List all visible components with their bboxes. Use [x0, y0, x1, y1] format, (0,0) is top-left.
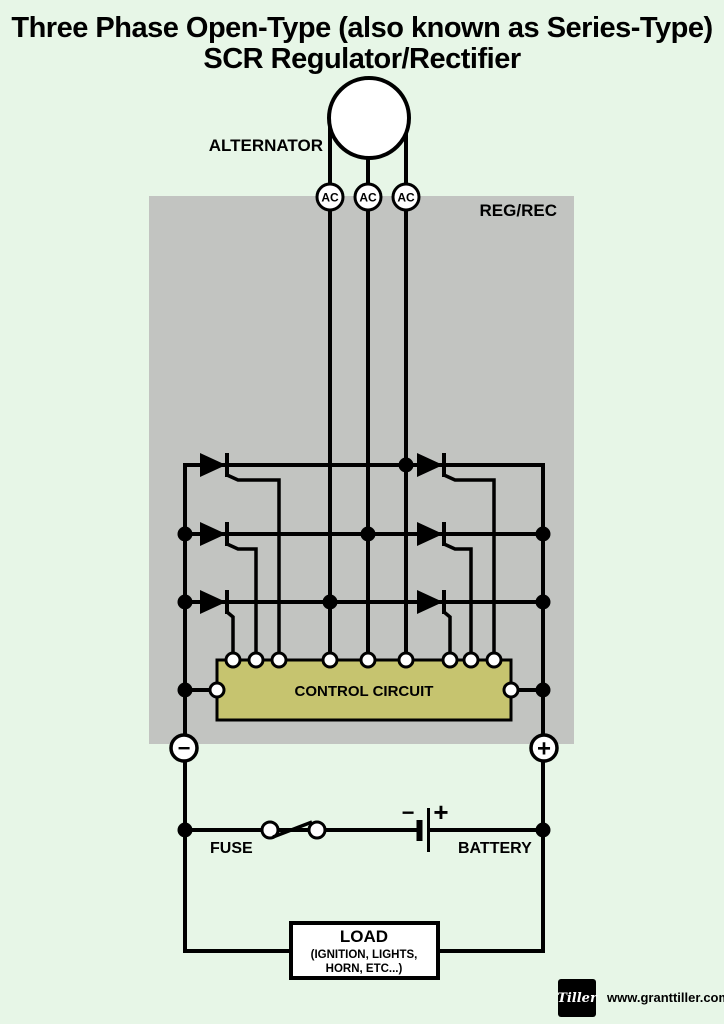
- load-title: LOAD: [340, 927, 388, 946]
- brand-logo: Tiller: [557, 979, 598, 1017]
- control-terminal: [361, 653, 375, 667]
- circuit-diagram: Three Phase Open-Type (also known as Ser…: [0, 0, 724, 1024]
- control-terminal: [399, 653, 413, 667]
- ac-terminal-1: AC: [317, 184, 343, 210]
- battery-plus-sign: +: [433, 797, 448, 827]
- load-subtitle-1: (IGNITION, LIGHTS,: [311, 949, 418, 961]
- control-terminal: [464, 653, 478, 667]
- junction-dot: [536, 823, 551, 838]
- fuse-label: FUSE: [210, 840, 253, 857]
- page-title-line2: SCR Regulator/Rectifier: [203, 43, 520, 75]
- regrec-label: REG/REC: [480, 201, 557, 220]
- battery-symbol: − +: [402, 797, 449, 852]
- junction-dot: [536, 683, 551, 698]
- page-title-line1: Three Phase Open-Type (also known as Ser…: [11, 12, 712, 44]
- control-terminal: [226, 653, 240, 667]
- junction-dot: [178, 595, 193, 610]
- logo-text: Tiller: [557, 991, 598, 1006]
- negative-terminal: −: [171, 735, 197, 761]
- junction-dot: [178, 527, 193, 542]
- control-terminal: [504, 683, 518, 697]
- ac-terminal-3: AC: [393, 184, 419, 210]
- junction-dot: [323, 595, 338, 610]
- junction-dot: [178, 823, 193, 838]
- battery-label: BATTERY: [458, 840, 532, 857]
- battery-minus-sign: −: [402, 800, 415, 825]
- load-box: LOAD (IGNITION, LIGHTS, HORN, ETC...): [291, 923, 438, 978]
- junction-dot: [399, 458, 414, 473]
- positive-terminal-sign: +: [537, 736, 551, 763]
- positive-terminal: +: [531, 735, 557, 763]
- diagram-page: Three Phase Open-Type (also known as Ser…: [0, 0, 724, 1024]
- negative-terminal-sign: −: [178, 736, 191, 761]
- fuse-symbol: [262, 822, 325, 838]
- website-text: www.granttiller.com: [606, 990, 724, 1005]
- control-circuit-box: CONTROL CIRCUIT: [217, 660, 511, 720]
- control-circuit-label: CONTROL CIRCUIT: [295, 683, 434, 700]
- control-terminal: [210, 683, 224, 697]
- ac-terminal-2: AC: [355, 184, 381, 210]
- control-terminal: [487, 653, 501, 667]
- control-terminal: [272, 653, 286, 667]
- ac-terminal-2-label: AC: [359, 191, 377, 205]
- ac-terminal-3-label: AC: [397, 191, 415, 205]
- control-terminal: [443, 653, 457, 667]
- alternator-symbol: [329, 78, 409, 158]
- junction-dot: [536, 527, 551, 542]
- control-terminal: [323, 653, 337, 667]
- junction-dot: [536, 595, 551, 610]
- load-subtitle-2: HORN, ETC...): [326, 963, 403, 975]
- ac-terminal-1-label: AC: [321, 191, 339, 205]
- control-terminal: [249, 653, 263, 667]
- alternator-label: ALTERNATOR: [209, 136, 323, 155]
- junction-dot: [361, 527, 376, 542]
- junction-dot: [178, 683, 193, 698]
